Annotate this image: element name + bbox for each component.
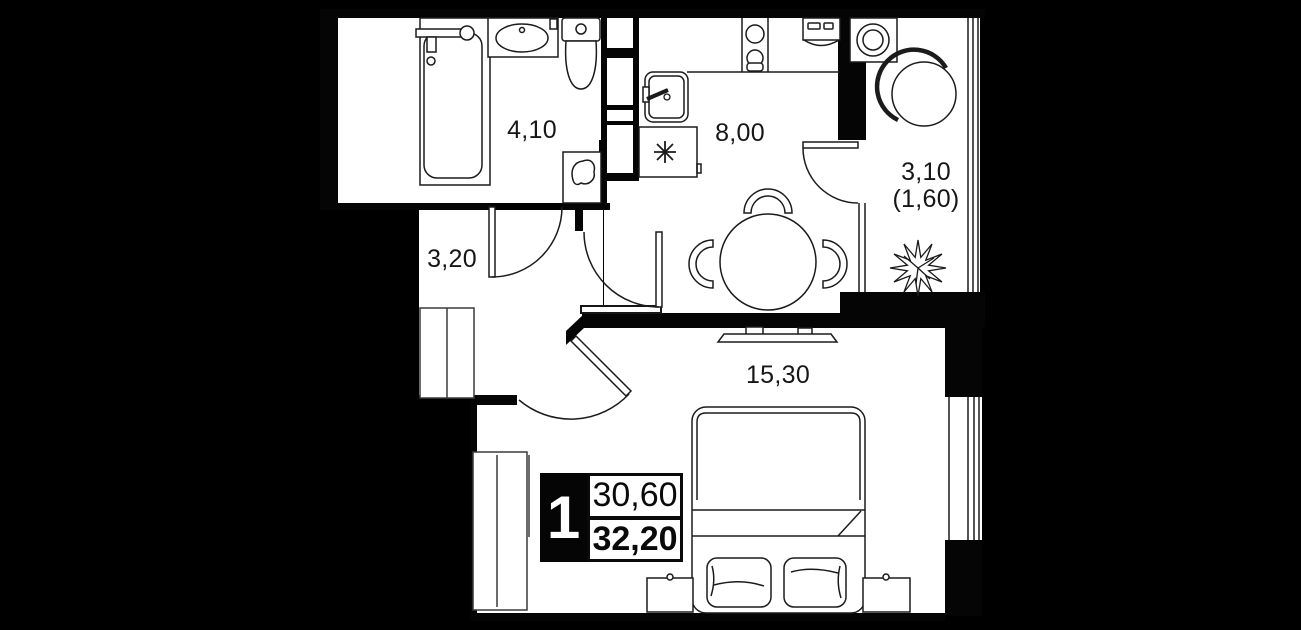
balcony-rail-wall [859, 203, 865, 292]
bedroom-window [949, 397, 979, 540]
toilet-icon [562, 18, 600, 89]
hood-appliance-icon [803, 18, 840, 46]
hallway-area-label: 3,20 [402, 245, 502, 274]
balcony-window [968, 18, 978, 292]
stove-icon [742, 18, 768, 72]
floor-plan: 4,10 3,20 8,00 3,10 (1,60) 15,30 1 30,60… [0, 0, 1301, 630]
living-area-value: 30,60 [587, 473, 683, 518]
kitchen-sink-icon [643, 72, 688, 122]
nightstand-icon [647, 574, 693, 612]
hall-wardrobe [420, 308, 474, 398]
washing-machine-icon [850, 18, 897, 62]
kitchen-door [584, 232, 662, 307]
living-area-label: 15,30 [728, 361, 828, 390]
bathroom-sink-icon [488, 18, 558, 57]
bathtub [416, 18, 490, 185]
balcony-area-full: 3,10 [866, 159, 986, 186]
balcony-area-label: 3,10 (1,60) [866, 159, 986, 213]
boiler-icon [877, 50, 956, 126]
bedroom-wardrobe [473, 452, 529, 610]
pillow-icon [784, 558, 846, 607]
balcony-area-reduced: (1,60) [866, 186, 986, 213]
water-heater-icon [563, 152, 601, 203]
dining-table [689, 189, 847, 310]
nightstand-icon [863, 574, 910, 612]
total-area-value: 32,20 [587, 518, 683, 563]
kitchen-area-label: 8,00 [690, 119, 790, 148]
bathroom-area-label: 4,10 [482, 116, 582, 145]
tv-icon [718, 327, 837, 342]
bedroom-door [519, 314, 631, 419]
pillow-icon [707, 558, 771, 607]
balcony-door [803, 142, 858, 203]
plant-icon [890, 240, 946, 296]
apartment-info-badge: 1 30,60 32,20 [540, 473, 683, 562]
rooms-count-badge: 1 [540, 473, 587, 562]
bed [692, 407, 865, 613]
